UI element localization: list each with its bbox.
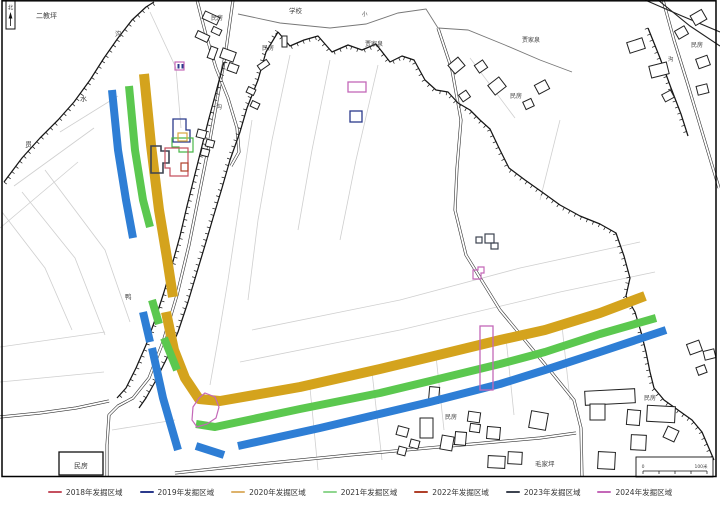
field-line [0, 332, 105, 347]
excavation-bands [112, 74, 666, 455]
excavation-area-2023 [491, 243, 498, 249]
excavation-band-2019 [143, 312, 150, 342]
field-line [112, 420, 175, 430]
building [227, 63, 239, 74]
excavation-area-2022 [181, 163, 188, 171]
map-legend: 2018年发掘区域2019年发掘区域2020年发掘区域2021年发掘区域2022… [0, 478, 720, 506]
legend-item-2022: 2022年发掘区域 [414, 487, 489, 498]
building [690, 9, 707, 25]
excavation-band-2021 [196, 318, 656, 427]
legend-item-2023: 2023年发掘区域 [506, 487, 581, 498]
map-label: 水 [80, 94, 87, 103]
test-pit [178, 64, 180, 69]
map-label: 民房 [74, 461, 88, 470]
building [696, 84, 709, 95]
map-label: 贾家泉 [522, 36, 540, 44]
map-label: 贯 [25, 141, 32, 149]
building [647, 405, 676, 422]
legend-swatch-2022 [414, 491, 428, 493]
field-line [45, 170, 130, 322]
building [195, 31, 210, 43]
building [534, 80, 549, 94]
building [440, 435, 454, 451]
legend-swatch-2023 [506, 491, 520, 493]
building [626, 409, 640, 425]
map-label: 鸭 [125, 292, 132, 301]
roads [0, 0, 720, 477]
map-label: 0 [642, 464, 645, 470]
map-frame [2, 1, 716, 477]
building [663, 426, 679, 442]
legend-swatch-2019 [140, 491, 154, 493]
field-line [210, 120, 252, 385]
legend-item-2021: 2021年发掘区域 [323, 487, 398, 498]
legend-swatch-2021 [323, 491, 337, 493]
building [674, 26, 688, 39]
field-line [298, 60, 330, 230]
legend-item-2019: 2019年发掘区域 [140, 487, 215, 498]
building [523, 98, 535, 109]
test-pit [182, 64, 184, 69]
map-label: 沟 [115, 29, 122, 38]
terrace-edge-line [648, 28, 688, 136]
building [508, 452, 523, 465]
map-label: 民房 [691, 41, 703, 49]
map-label: 毛家坪 [535, 459, 555, 468]
excavation-markers [151, 62, 498, 427]
legend-label: 2020年发掘区域 [249, 487, 306, 498]
excavation-area-2023 [485, 234, 494, 243]
road-edge [658, 0, 720, 46]
field-line [2, 212, 72, 330]
legend-label: 2024年发掘区域 [615, 487, 672, 498]
excavation-band-2021 [152, 300, 159, 324]
map-label: 沟 [216, 103, 222, 111]
building [257, 59, 269, 70]
building [696, 365, 707, 376]
path-line [238, 9, 438, 28]
legend-label: 2018年发掘区域 [66, 487, 123, 498]
legend-label: 2022年发掘区域 [432, 487, 489, 498]
legend-item-2020: 2020年发掘区域 [231, 487, 306, 498]
building [459, 90, 471, 102]
legend-label: 2019年发掘区域 [158, 487, 215, 498]
map-label: 民房 [510, 92, 522, 100]
field-line [22, 192, 105, 335]
legend-swatch-2018 [48, 491, 62, 493]
field-line [14, 128, 94, 186]
building [420, 418, 433, 438]
building [631, 435, 647, 451]
excavation-area-2019 [350, 111, 362, 122]
map-label: 小 [362, 10, 368, 18]
excavation-area-2024 [348, 82, 366, 92]
building [454, 432, 466, 446]
site-map: 二教坪沟民房学校小贾家泉民房贾家泉民房民房沟沟水贯鸭民房民房毛家坪民房北0100… [0, 0, 720, 478]
map-label: 北 [8, 4, 14, 12]
map-label: 沟 [668, 55, 674, 63]
building [469, 423, 480, 432]
legend-item-2018: 2018年发掘区域 [48, 487, 123, 498]
building [590, 404, 605, 420]
field-line [0, 372, 104, 382]
excavation-area-2024 [480, 326, 493, 390]
map-label: 100米 [694, 463, 708, 470]
building [250, 101, 260, 110]
building [220, 48, 237, 62]
building [396, 426, 409, 438]
map-label: 贾家泉 [365, 40, 383, 48]
building [585, 389, 636, 406]
map-label: 学校 [289, 6, 303, 15]
building [467, 411, 480, 423]
legend-label: 2021年发掘区域 [341, 487, 398, 498]
building [529, 411, 549, 431]
map-label: 民房 [445, 413, 457, 421]
building [282, 36, 287, 47]
building [211, 26, 222, 35]
building [474, 60, 487, 73]
building [488, 77, 506, 95]
excavation-area-2023 [476, 237, 482, 243]
field-line [540, 120, 560, 200]
excavation-band-2020 [144, 74, 173, 297]
building [598, 452, 616, 470]
field-line [340, 65, 378, 240]
map-label: 民房 [644, 394, 656, 402]
map-label: 二教坪 [36, 11, 57, 20]
map-label: 民房 [211, 14, 223, 22]
buildings [195, 9, 716, 469]
building [488, 456, 506, 469]
excavation-site-plan: 二教坪沟民房学校小贾家泉民房贾家泉民房民房沟沟水贯鸭民房民房毛家坪民房北0100… [0, 0, 720, 506]
building [487, 426, 501, 439]
legend-item-2024: 2024年发掘区域 [597, 487, 672, 498]
legend-label: 2023年发掘区域 [524, 487, 581, 498]
map-label: 民房 [262, 44, 274, 52]
building [696, 55, 711, 69]
building [409, 439, 420, 449]
building [627, 38, 646, 53]
building [448, 57, 465, 74]
legend-swatch-2020 [231, 491, 245, 493]
building [196, 129, 207, 139]
excavation-area-2020 [178, 133, 187, 141]
building [200, 148, 210, 157]
building [397, 446, 407, 456]
building [687, 340, 703, 355]
excavation-band-2019 [196, 446, 224, 455]
building [205, 139, 215, 148]
building [703, 349, 716, 360]
legend-swatch-2024 [597, 491, 611, 493]
